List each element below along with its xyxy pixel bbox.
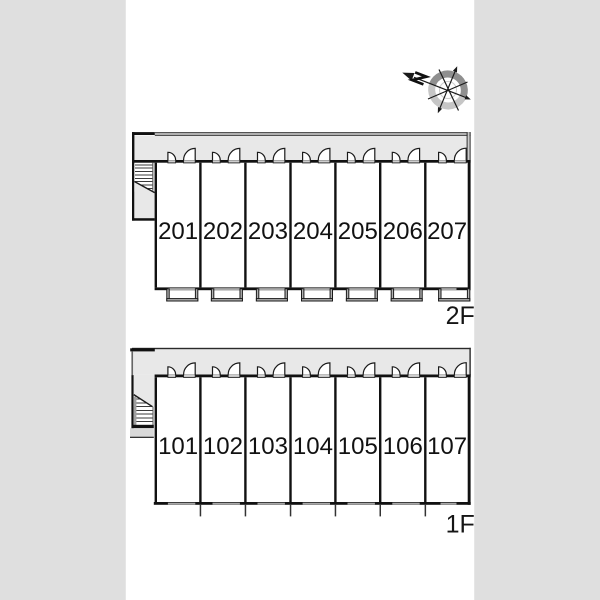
svg-text:203: 203: [248, 218, 288, 245]
svg-text:205: 205: [338, 218, 378, 245]
svg-text:2F: 2F: [446, 302, 475, 330]
svg-text:103: 103: [248, 433, 288, 460]
svg-text:105: 105: [338, 433, 378, 460]
svg-text:101: 101: [158, 433, 198, 460]
svg-text:204: 204: [293, 218, 333, 245]
svg-text:102: 102: [203, 433, 243, 460]
svg-text:1F: 1F: [446, 510, 475, 538]
svg-text:207: 207: [427, 218, 467, 245]
svg-text:201: 201: [158, 218, 198, 245]
svg-text:107: 107: [427, 433, 467, 460]
svg-text:104: 104: [293, 433, 333, 460]
svg-text:206: 206: [383, 218, 423, 245]
svg-text:106: 106: [383, 433, 423, 460]
svg-text:202: 202: [203, 218, 243, 245]
